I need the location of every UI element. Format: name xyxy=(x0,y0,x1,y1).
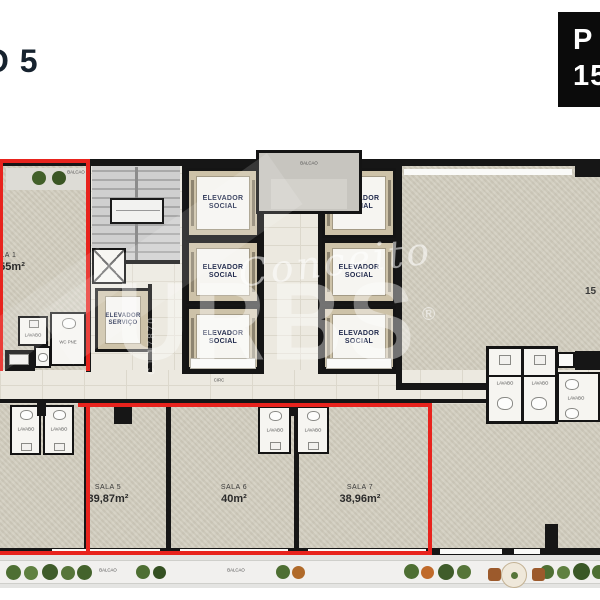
wall xyxy=(166,407,171,548)
chair xyxy=(532,568,545,581)
page-title: O 5 xyxy=(0,44,39,78)
window-sill xyxy=(404,169,572,175)
elevator-label: ELEVADOR xyxy=(203,195,244,204)
bathroom-block: LAVABO LAVABO xyxy=(486,346,558,424)
bathroom-label: LAVABO xyxy=(264,429,286,433)
sala5-name: SALA 5 xyxy=(73,484,143,491)
toilet xyxy=(269,411,282,421)
wall xyxy=(524,375,555,377)
sink xyxy=(499,355,511,365)
counter xyxy=(557,352,575,368)
sala5-area: 39,87m² xyxy=(73,493,143,505)
floor-badge-line2: 15 xyxy=(573,58,600,94)
sala7-name: SALA 7 xyxy=(325,484,395,491)
plant xyxy=(276,565,290,579)
floor-plan-page: O 5 P 15 BALCÃO SALA 1 0,55m² LAVABO WC … xyxy=(0,0,600,600)
table xyxy=(501,562,527,588)
toilet xyxy=(62,318,76,329)
unit-outline xyxy=(78,403,432,407)
unit-outline xyxy=(0,159,3,371)
bathroom-stall: LAVABO xyxy=(557,372,600,422)
column xyxy=(37,403,46,416)
plant xyxy=(52,171,66,185)
elevator-social: ELEVADORSOCIAL xyxy=(186,240,260,304)
toilet xyxy=(565,408,579,419)
plant xyxy=(557,566,570,579)
bathroom-label: LAVABO xyxy=(15,428,37,432)
stair-landing xyxy=(110,198,164,224)
floor-badge: P 15 xyxy=(558,12,600,107)
sala7-label: SALA 7 38,96m² xyxy=(325,484,395,505)
toilet xyxy=(531,397,547,410)
balcony-label: BALCÃO xyxy=(66,171,86,175)
plant xyxy=(61,566,75,580)
elevator-label: ELEVADOR xyxy=(339,330,380,339)
bathroom-wc-pne: WC PNE xyxy=(50,312,86,366)
counter xyxy=(5,350,35,371)
circulation-label: CIRC xyxy=(208,379,230,383)
toilet xyxy=(20,410,33,420)
plant xyxy=(153,566,166,579)
plant xyxy=(404,564,419,579)
bathroom-label: LAVABO xyxy=(494,382,516,386)
bathroom-stall: LAVABO xyxy=(18,316,48,346)
elevator-label: ELEVADOR xyxy=(339,264,380,273)
toilet xyxy=(565,379,579,390)
sink xyxy=(270,442,281,450)
bathroom-stall: LAVABO xyxy=(296,406,329,454)
plant xyxy=(438,564,454,580)
plant xyxy=(421,566,434,579)
elevator-service-label: SERVIÇO xyxy=(109,320,138,328)
sala5-label: SALA 5 39,87m² xyxy=(73,484,143,505)
wall xyxy=(396,166,402,390)
sink xyxy=(308,442,319,450)
divider xyxy=(116,210,160,211)
floor-badge-line1: P xyxy=(573,22,600,58)
right-room-area-partial: 15 xyxy=(585,286,596,297)
elevator-service: ELEVADOR SERVIÇO xyxy=(95,288,151,352)
toilet xyxy=(497,397,513,410)
plant xyxy=(457,565,471,579)
wall xyxy=(148,284,152,372)
elevator-label: ELEVADOR xyxy=(203,330,244,339)
bathroom-stall xyxy=(34,346,51,368)
plant xyxy=(24,566,38,580)
column xyxy=(575,160,600,177)
chair xyxy=(488,568,501,581)
elevator-label: SOCIAL xyxy=(345,338,373,347)
elevator-social: ELEVADORSOCIAL xyxy=(186,168,260,238)
bathroom-label: WC PNE xyxy=(57,341,79,345)
elevator-label: SOCIAL xyxy=(345,272,373,281)
sala6-area: 40m² xyxy=(199,493,269,505)
counter xyxy=(575,351,600,370)
bathroom-label: LAVABO xyxy=(565,397,587,401)
sink xyxy=(54,443,65,451)
column xyxy=(545,524,558,554)
elevator-threshold xyxy=(326,358,392,369)
balcony-label: BALCÃO xyxy=(96,569,119,573)
unit-outline xyxy=(86,159,90,371)
bathroom-label: LAVABO xyxy=(22,334,44,338)
elevator-label: SOCIAL xyxy=(209,338,237,347)
window-sill xyxy=(440,549,540,554)
toilet xyxy=(307,411,320,421)
balcony-label: BALCÃO xyxy=(224,569,247,573)
wall xyxy=(521,349,524,421)
bathroom-stall: LAVABO xyxy=(258,406,291,454)
sala1-area: 0,55m² xyxy=(0,261,62,273)
top-balcony: BALCÃO xyxy=(256,150,362,214)
plant xyxy=(6,565,21,580)
sala1-label: SALA 1 0,55m² xyxy=(0,252,62,273)
sink xyxy=(534,355,546,365)
sink xyxy=(21,443,32,451)
bathroom-label: LAVABO xyxy=(302,429,324,433)
plant xyxy=(32,171,46,185)
bathroom-label: LAVABO xyxy=(529,382,551,386)
plant xyxy=(292,566,305,579)
plant xyxy=(511,572,518,579)
duct-shaft xyxy=(92,248,126,284)
room-bottom-right-floor xyxy=(432,404,600,550)
wall xyxy=(489,375,521,377)
toilet xyxy=(38,353,48,362)
elevator-label: SOCIAL xyxy=(209,272,237,281)
plant xyxy=(42,564,58,580)
unit-outline xyxy=(0,551,432,555)
plant xyxy=(592,565,600,579)
plant xyxy=(573,563,590,580)
plant xyxy=(77,565,92,580)
sala1-name: SALA 1 xyxy=(0,252,62,259)
plant xyxy=(136,565,150,579)
sink xyxy=(29,320,39,328)
elevator-label: ELEVADOR xyxy=(203,264,244,273)
sala6-name: SALA 6 xyxy=(199,484,269,491)
elevator-service-label: ELEVADOR xyxy=(105,313,140,321)
elevator-social: ELEVADORSOCIAL xyxy=(322,240,396,304)
sala6-label: SALA 6 40m² xyxy=(199,484,269,505)
sala7-area: 38,96m² xyxy=(325,493,395,505)
unit-outline xyxy=(0,159,90,163)
elevator-label: SOCIAL xyxy=(209,203,237,212)
unit-outline xyxy=(428,403,432,554)
balcony-label: BALCÃO xyxy=(298,162,320,166)
unit-outline xyxy=(86,403,90,554)
toilet xyxy=(53,410,66,420)
bathroom-label: LAVABO xyxy=(48,428,70,432)
balcony-slab xyxy=(271,179,347,209)
sink xyxy=(9,354,29,365)
bathroom-stall: LAVABO xyxy=(43,405,74,455)
elevator-threshold xyxy=(190,358,256,369)
